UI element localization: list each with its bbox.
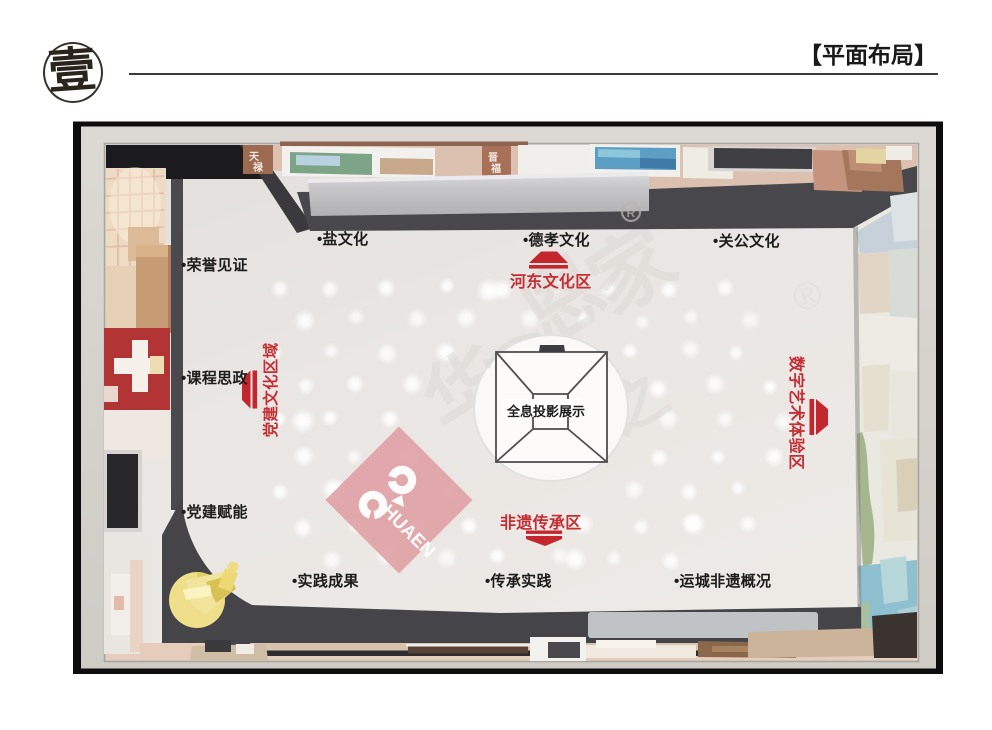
- svg-text:禄: 禄: [252, 161, 264, 174]
- svg-text:晋: 晋: [488, 152, 498, 164]
- svg-text:R: R: [627, 206, 636, 220]
- svg-text:天: 天: [249, 151, 260, 163]
- svg-text:福: 福: [490, 162, 501, 175]
